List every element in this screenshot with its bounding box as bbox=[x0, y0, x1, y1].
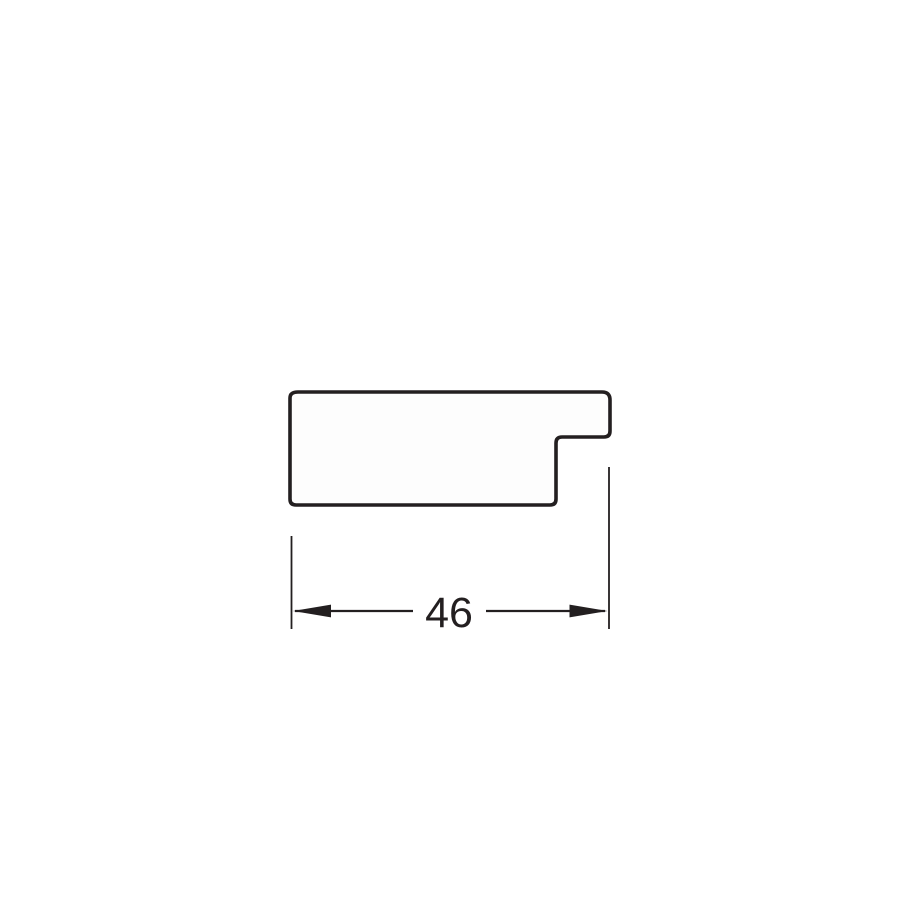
moulding-profile-drawing: 46 bbox=[0, 0, 900, 900]
dimension-label: 46 bbox=[425, 589, 473, 637]
dimension-arrowhead-left bbox=[293, 605, 331, 618]
moulding-profile-outline bbox=[290, 392, 610, 505]
technical-drawing-canvas: 46 bbox=[0, 0, 900, 900]
dimension-arrowhead-right bbox=[570, 605, 608, 618]
